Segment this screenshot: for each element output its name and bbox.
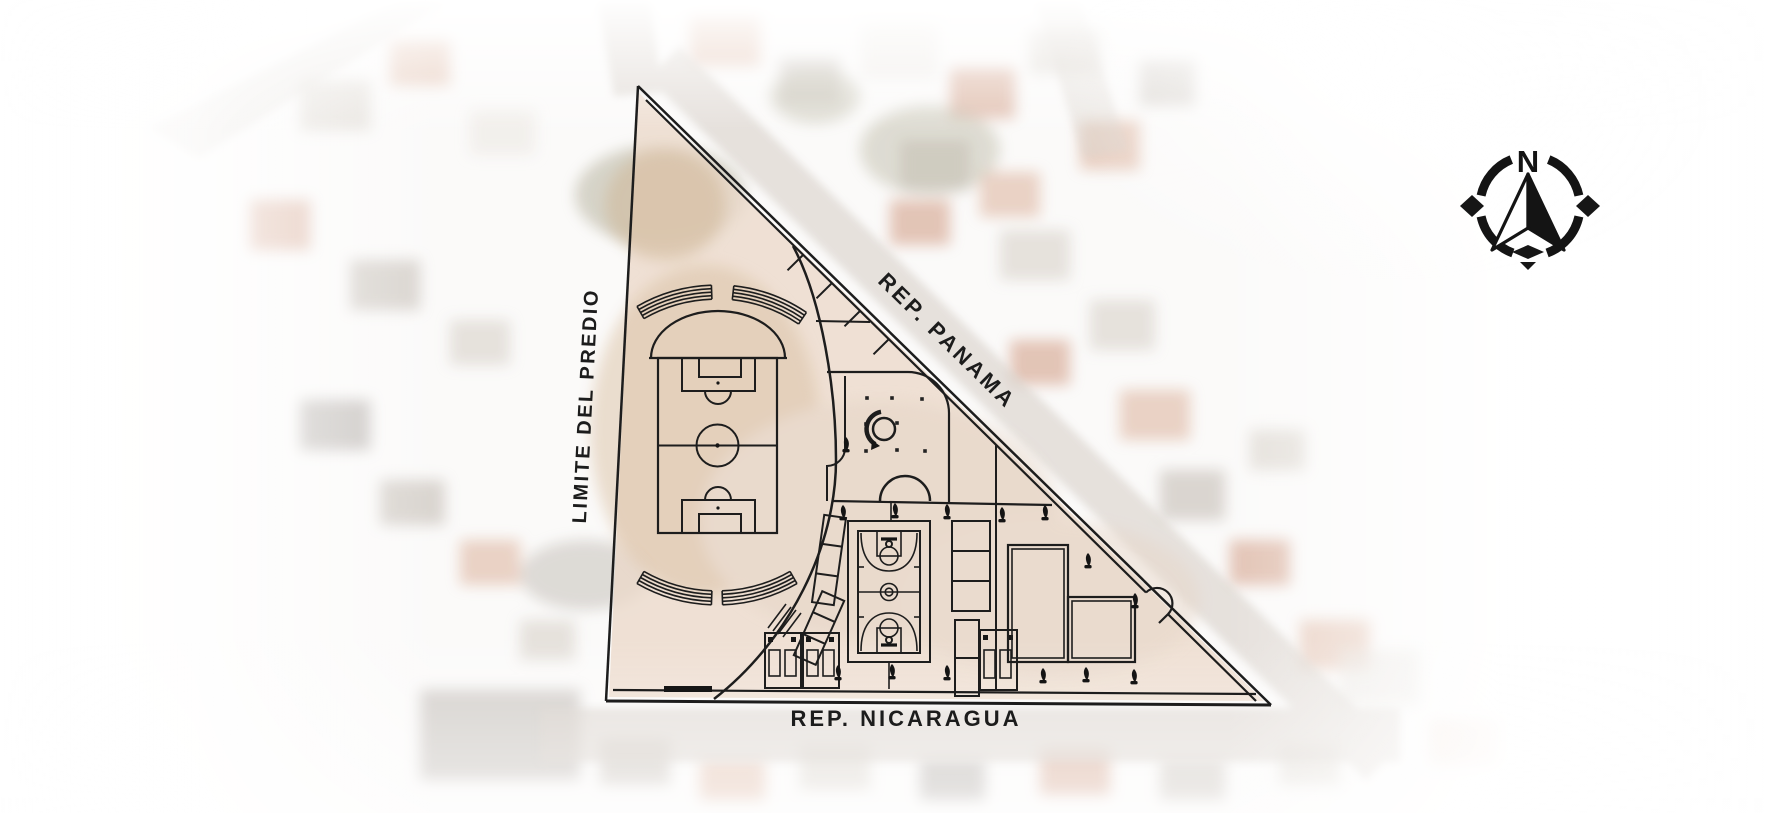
compass-north-letter: N bbox=[1517, 144, 1539, 179]
upper-zone-divider bbox=[816, 321, 870, 322]
street-label-nicaragua: REP. NICARAGUA bbox=[790, 706, 1021, 731]
site-plan-page: LIMITE DEL PREDIO REP. PANAMA REP. NICAR… bbox=[0, 0, 1766, 813]
south-entrance-mark bbox=[664, 686, 712, 692]
